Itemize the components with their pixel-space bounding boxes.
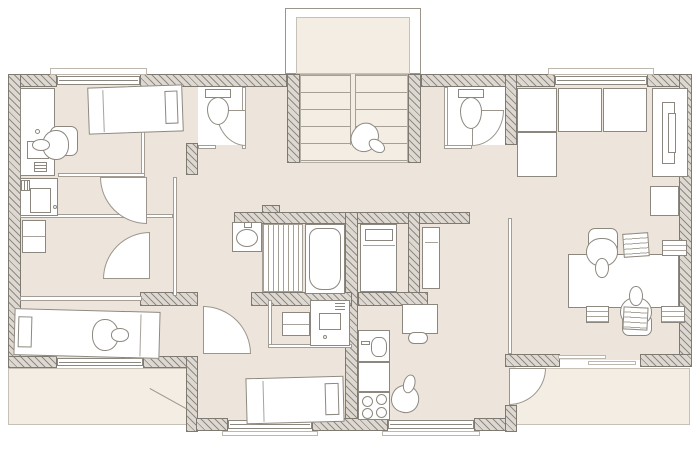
pillow (325, 383, 340, 415)
chair-icon-kitchen (408, 332, 428, 344)
wall-bottomright-2 (640, 354, 692, 367)
stair-landing-floor (296, 17, 410, 74)
partition-vanity-left (268, 300, 272, 348)
table-icon-kitchen (402, 304, 438, 334)
wall-party-lower (408, 212, 420, 300)
staircase-down-icon (262, 224, 303, 292)
bed-foldline (425, 242, 438, 243)
person-head (111, 328, 129, 341)
wall-top-3 (421, 74, 555, 87)
vanity-basin (319, 313, 341, 330)
paper-icon-5 (661, 306, 685, 323)
terrace-left (8, 368, 188, 425)
faucet-icon-bath (244, 222, 252, 228)
partition-bedroom-bottomleft (20, 296, 142, 301)
window-sill-top-left (50, 68, 147, 75)
wall-wc-right-end (505, 74, 517, 145)
toilet-bowl (207, 97, 229, 125)
partition-hall-vertical (173, 177, 177, 296)
burner (362, 408, 373, 419)
bed-foldline (102, 90, 104, 132)
wardrobe-handle (668, 113, 676, 153)
partition-right-unit (508, 218, 512, 354)
bed-foldline (262, 381, 264, 422)
burner (376, 407, 387, 418)
cabinet-icon-right-1 (517, 88, 557, 132)
bathtub-inner (309, 228, 341, 290)
toilet-bowl (460, 97, 482, 129)
bed-foldline (139, 314, 141, 356)
paper-icon-3 (586, 306, 609, 323)
bed-icon-middle-right (422, 227, 440, 289)
faucet-icon-kitchen (361, 341, 370, 345)
printer-icon (34, 162, 47, 172)
kitchen-counter (358, 362, 390, 392)
window-icon-top-right (555, 76, 647, 85)
vanity-knob (323, 335, 327, 339)
wardrobe-icon (652, 88, 688, 177)
wall-wc-left-end (186, 143, 198, 175)
kitchen-sink-icon (358, 330, 390, 362)
window-icon-bottom-2 (388, 420, 474, 429)
wall-bottomleft-1 (8, 356, 57, 368)
window-icon-bottomleft (57, 358, 143, 366)
pillow (164, 91, 178, 124)
vanity-counter (310, 300, 350, 346)
pillow (18, 316, 33, 347)
cabinet-icon-right-5 (650, 186, 679, 216)
washbasin-bowl (236, 229, 258, 247)
washbasin-icon-bath (232, 222, 262, 252)
burner (362, 396, 373, 407)
bed-foldline (363, 245, 395, 246)
window-sill-bottom-2 (382, 431, 480, 436)
sliding-door-leaf-1 (558, 355, 606, 359)
person-head (595, 258, 608, 278)
towel-rail-icon (335, 303, 345, 310)
person-icon-at-desk (32, 130, 74, 160)
partition-wc-right-bottom (444, 145, 472, 149)
toilet-icon-left (205, 89, 231, 125)
cabinet-icon-right-2 (517, 132, 557, 177)
paper-icon-2 (662, 240, 687, 256)
bathtub-icon (305, 224, 345, 294)
sliding-door-leaf-2 (588, 361, 636, 365)
paper-icon-1 (622, 232, 650, 258)
wall-bottomright-connector (505, 405, 517, 432)
shelf-icon (21, 180, 30, 191)
stove-icon (358, 392, 390, 420)
monitor-icon (30, 188, 51, 213)
cabinet-divider (283, 324, 309, 325)
wall-bottomright-1 (505, 354, 560, 367)
bed-icon-topleft (87, 84, 184, 134)
person-head (629, 286, 642, 306)
bed-icon-bottom-center (245, 376, 344, 425)
cabinet-icon-bathroom (282, 312, 310, 336)
cabinet-icon-office (22, 220, 46, 253)
wall-bath-bottom-left (140, 292, 198, 306)
window-icon-top-left (57, 76, 140, 85)
stairwell-wall-right (408, 74, 421, 163)
cabinet-icon-right-3 (558, 88, 602, 132)
cabinet-icon-right-4 (603, 88, 647, 132)
wall-bottom-1 (196, 418, 228, 431)
partition-wc-right-side (444, 87, 448, 149)
mouse-icon (53, 205, 57, 209)
burner (376, 394, 387, 405)
stairwell-wall-left (287, 74, 300, 163)
pillow (365, 229, 393, 241)
person-icon-right-1 (586, 232, 618, 278)
wall-bath-step (262, 205, 280, 213)
person-icon-on-bed (87, 319, 129, 351)
window-sill-top-right (548, 68, 654, 75)
partition-wc-left-bottom (198, 145, 216, 149)
bed-icon-middle-left (360, 224, 397, 292)
toilet-icon-right (458, 89, 484, 129)
cabinet-divider (23, 236, 45, 237)
sink-bowl (371, 337, 387, 357)
paper-icon-4 (622, 306, 648, 330)
window-sill-bottom-1 (222, 431, 318, 436)
floor-plan (0, 0, 700, 461)
